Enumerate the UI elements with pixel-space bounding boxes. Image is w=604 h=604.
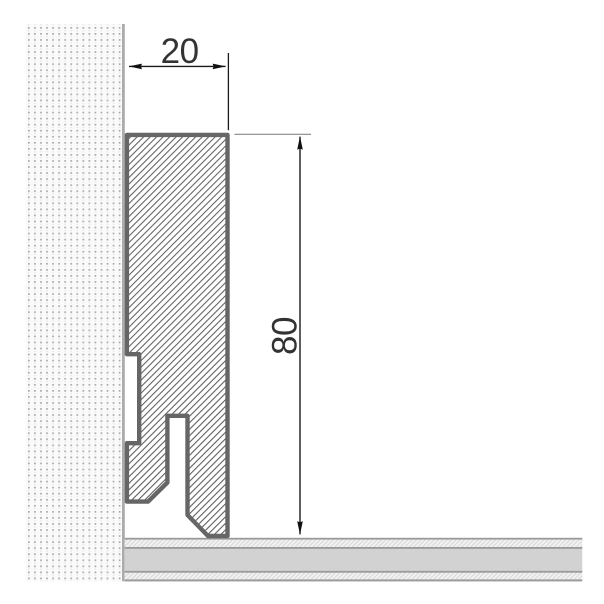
svg-text:20: 20 [161,32,199,71]
svg-text:80: 80 [266,317,305,355]
